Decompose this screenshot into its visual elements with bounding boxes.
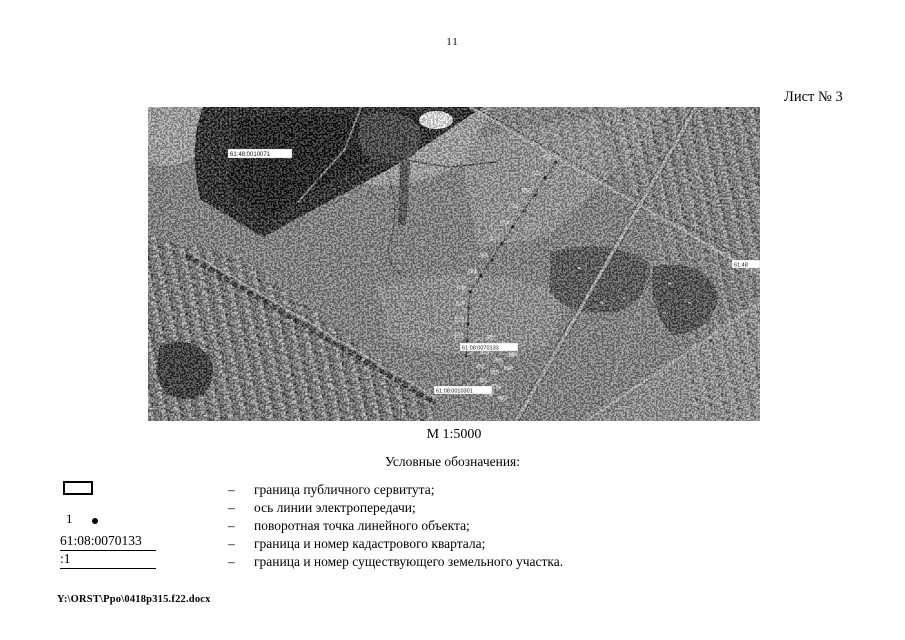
legend-dash: – bbox=[228, 535, 254, 553]
map-label-parcel-bottom: 61:08:0010301 bbox=[436, 389, 473, 395]
cadastral-quarter-number: 61:08:0070133 bbox=[60, 533, 156, 551]
legend-dash: – bbox=[228, 553, 254, 571]
legend-item-label: ось линии электропередачи; bbox=[254, 499, 416, 517]
legend-item-quarter-boundary: – граница и номер кадастрового квартала; bbox=[228, 535, 648, 553]
turning-point-number: 1 bbox=[66, 511, 73, 527]
legend-dash: – bbox=[228, 499, 254, 517]
map-label-quarter-top-left: 61:48:0010071 bbox=[230, 152, 271, 158]
legend-item-turning-point: – поворотная точка линейного объекта; bbox=[228, 517, 648, 535]
servitude-boundary-symbol bbox=[63, 481, 93, 495]
legend-title: Условные обозначения: bbox=[0, 454, 905, 470]
legend-item-servitude-boundary: – граница публичного сервитута; bbox=[228, 481, 648, 499]
sheet-label: Лист № 3 bbox=[784, 89, 843, 106]
map-label-quarter-center: 61:08:0070133 bbox=[462, 346, 499, 352]
legend-item-label: граница и номер существующего земельного… bbox=[254, 553, 563, 571]
legend-dash: – bbox=[228, 517, 254, 535]
cadastral-map-image: 61:48:0010071 61:08:0070133 61:08:001030… bbox=[148, 107, 760, 421]
legend-dash: – bbox=[228, 481, 254, 499]
legend-item-label: граница и номер кадастрового квартала; bbox=[254, 535, 485, 553]
turning-point-dot-symbol bbox=[92, 518, 98, 524]
legend-item-existing-parcel: – граница и номер существующего земельно… bbox=[228, 553, 648, 571]
parcel-number: :1 bbox=[60, 551, 156, 569]
legend-item-label: поворотная точка линейного объекта; bbox=[254, 517, 470, 535]
map-label-quarter-right-edge: 61:48 bbox=[734, 263, 748, 269]
map-scale-caption: М 1:5000 bbox=[148, 427, 760, 443]
map-svg: 61:48:0010071 61:08:0070133 61:08:001030… bbox=[148, 107, 760, 421]
document-file-path: Y:\ORST\Ppo\0418p315.f22.docx bbox=[57, 594, 211, 605]
legend-item-label: граница публичного сервитута; bbox=[254, 481, 434, 499]
legend-item-power-line-axis: – ось линии электропередачи; bbox=[228, 499, 648, 517]
page-number: 11 bbox=[0, 36, 905, 48]
legend-list: – граница публичного сервитута; – ось ли… bbox=[228, 481, 648, 571]
